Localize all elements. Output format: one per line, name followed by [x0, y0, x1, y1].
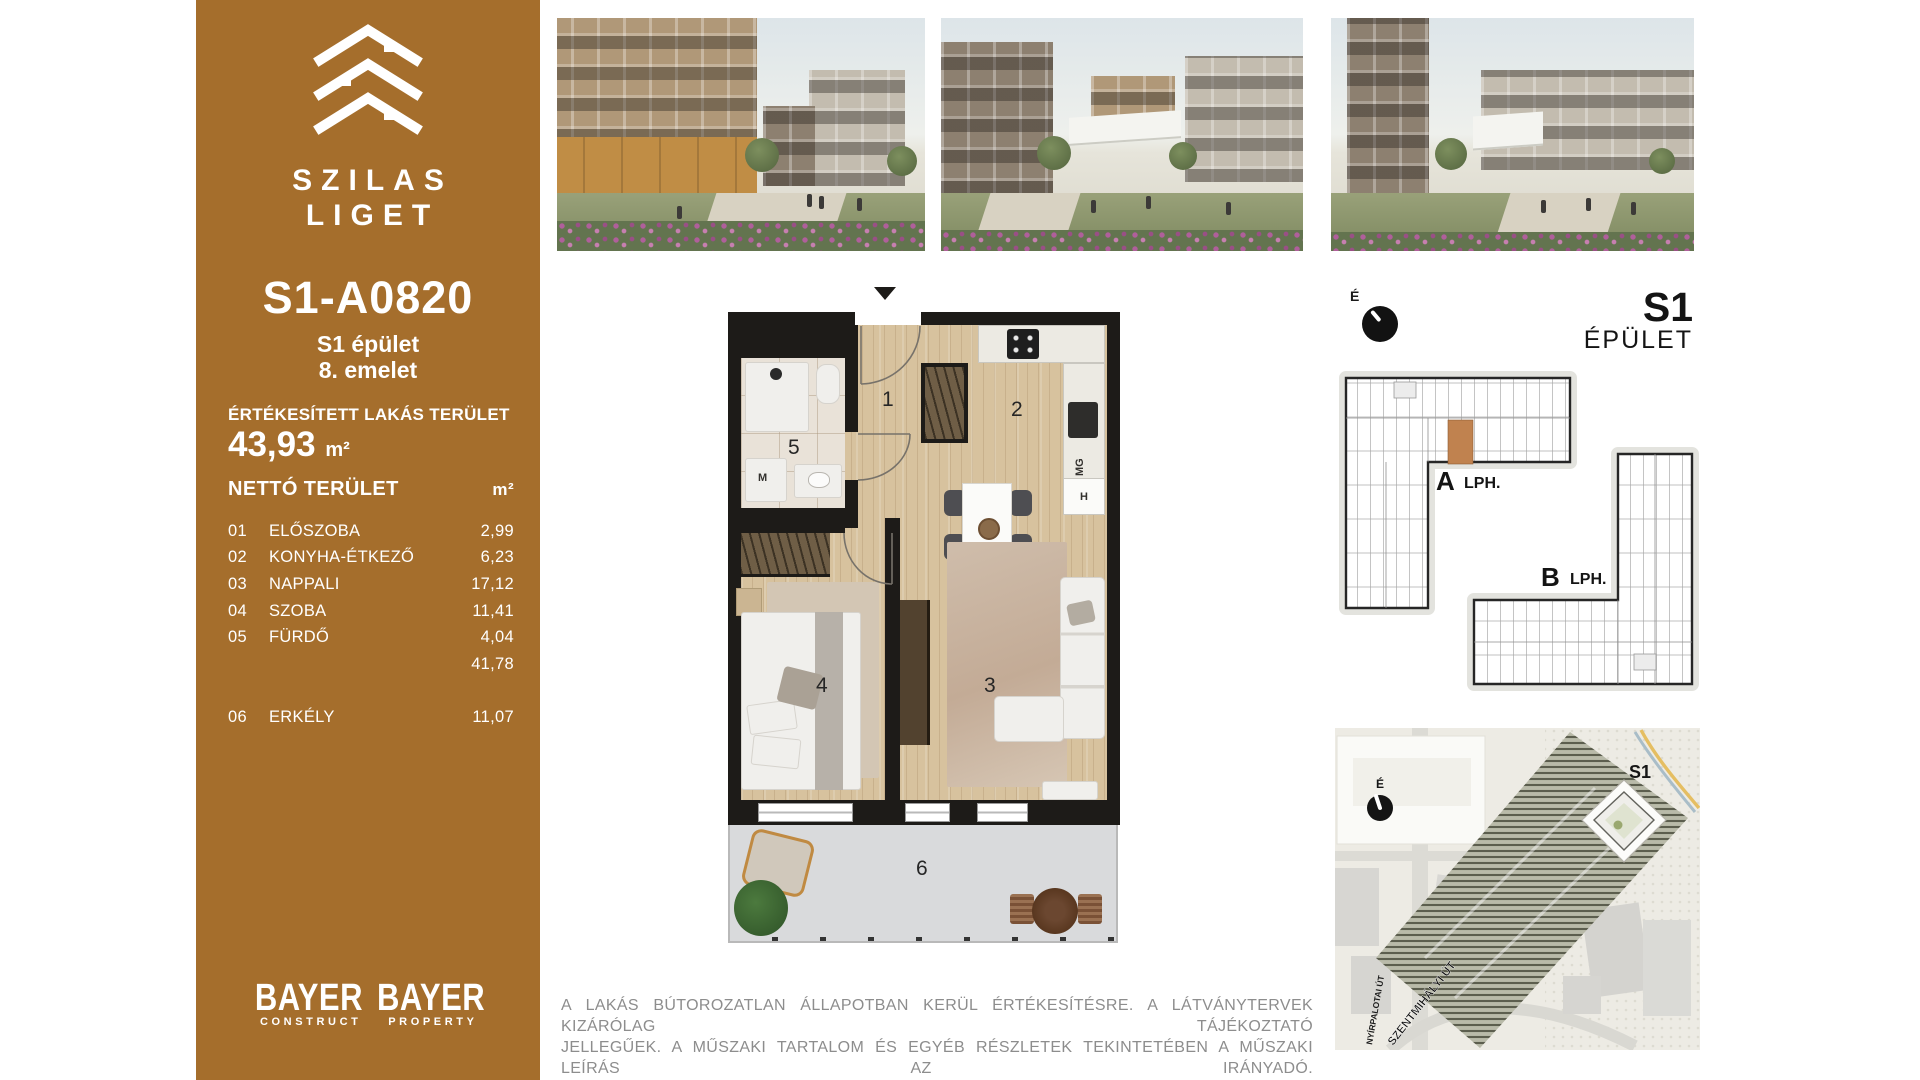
- dishwasher-label: MG: [1074, 444, 1094, 476]
- washer-label: M: [758, 472, 767, 484]
- row-area: 4,04: [481, 628, 514, 647]
- room-label-bath: 5: [788, 436, 800, 460]
- table-row-total: 41,78: [228, 651, 514, 678]
- room-label-kitchen: 2: [1011, 398, 1023, 422]
- table-row: 04 SZOBA 11,41: [228, 598, 514, 625]
- row-area: 41,78: [471, 655, 514, 674]
- logo-brand: BAYER: [377, 980, 485, 1017]
- table-row: 01 ELŐSZOBA 2,99: [228, 518, 514, 545]
- table-row: 06 ERKÉLY 11,07: [228, 705, 514, 732]
- table-plant: [978, 518, 1000, 540]
- render-photo-tower: [1331, 18, 1694, 251]
- row-no: 05: [228, 628, 269, 647]
- building-code: S1: [1450, 288, 1693, 326]
- render-photo-courtyard: [557, 18, 925, 251]
- net-area-header: NETTÓ TERÜLET m²: [228, 478, 514, 501]
- living-rug: [947, 542, 1067, 787]
- logo-brand: BAYER: [255, 980, 363, 1017]
- building-title-block: S1 ÉPÜLET: [1450, 288, 1693, 355]
- row-name: ERKÉLY: [269, 708, 472, 727]
- staircase-a-letter: A: [1436, 466, 1455, 496]
- row-no: 06: [228, 708, 269, 727]
- table-row: 05 FÜRDŐ 4,04: [228, 624, 514, 651]
- kitchen-sink: [1068, 402, 1098, 438]
- fridge-label: H: [1080, 491, 1088, 503]
- row-area: 11,41: [472, 602, 514, 621]
- row-area: 2,99: [481, 522, 514, 541]
- site-building-label: S1: [1629, 762, 1651, 782]
- bedroom-living-wall: [885, 518, 900, 800]
- sold-area-value: 43,93 m²: [228, 425, 514, 465]
- hall-bedroom-wall: [728, 518, 845, 533]
- balcony-chair: [1078, 894, 1102, 924]
- entrance-marker-icon: [874, 287, 896, 300]
- cooktop: [1007, 329, 1039, 359]
- entry-opening: [855, 312, 921, 325]
- room-label-balcony: 6: [916, 857, 928, 881]
- brand-line1: SZILAS: [196, 163, 540, 198]
- sink-basin: [808, 472, 830, 488]
- disclaimer-line1: A LAKÁS BÚTOROZATLAN ÁLLAPOTBAN KERÜL ÉR…: [561, 995, 1313, 1037]
- living-window: [977, 803, 1028, 822]
- row-area: 11,07: [472, 708, 514, 727]
- net-area-table: 01 ELŐSZOBA 2,99 02 KONYHA-ÉTKEZŐ 6,23 0…: [228, 518, 514, 731]
- apartment-floor-plan: M MG H: [722, 282, 1122, 962]
- toilet: [816, 364, 840, 404]
- balcony-table: [1032, 888, 1078, 934]
- row-no: 01: [228, 522, 269, 541]
- row-area: 6,23: [481, 548, 514, 567]
- balcony-railing: [730, 937, 1116, 941]
- room-label-hall: 1: [882, 388, 894, 412]
- row-no: 02: [228, 548, 269, 567]
- balcony-chair: [1010, 894, 1034, 924]
- table-row: 02 KONYHA-ÉTKEZŐ 6,23: [228, 545, 514, 572]
- row-no: 03: [228, 575, 269, 594]
- floor-line: 8. emelet: [196, 357, 540, 384]
- site-north-label: É: [1376, 776, 1384, 791]
- sold-area-label: ÉRTÉKESÍTETT LAKÁS TERÜLET: [228, 405, 514, 425]
- fridge: H: [1063, 478, 1105, 515]
- staircase-b-letter: B: [1541, 562, 1560, 592]
- sofa-chaise: [994, 696, 1064, 742]
- row-name: NAPPALI: [269, 575, 471, 594]
- balcony-door: [905, 803, 950, 822]
- row-name: FÜRDŐ: [269, 628, 481, 647]
- sidebar: SZILAS LIGET S1-A0820 S1 épület 8. emele…: [196, 0, 540, 1080]
- staircase-b-suffix: LPH.: [1570, 571, 1606, 588]
- kitchen-counter-top: [978, 325, 1105, 363]
- net-area-title: NETTÓ TERÜLET: [228, 478, 399, 501]
- entry-wardrobe: [925, 367, 964, 439]
- building-line: S1 épület: [196, 331, 540, 358]
- net-area-unit: m²: [492, 480, 514, 500]
- disclaimer-text: A LAKÁS BÚTOROZATLAN ÁLLAPOTBAN KERÜL ÉR…: [561, 995, 1313, 1079]
- szilas-liget-logo-icon: [196, 22, 540, 153]
- shaft-wall: [741, 325, 858, 361]
- brand-line2: LIGET: [196, 198, 540, 233]
- table-row: 03 NAPPALI 17,12: [228, 571, 514, 598]
- disclaimer-line2: JELLEGŰEK. A MŰSZAKI TARTALOM ÉS EGYÉB R…: [561, 1037, 1313, 1079]
- sold-area-unit: m²: [325, 439, 349, 461]
- row-area: 17,12: [471, 575, 514, 594]
- sold-area-number: 43,93: [228, 425, 316, 464]
- window-bench: [1042, 781, 1098, 800]
- row-name: SZOBA: [269, 602, 472, 621]
- bathroom-wall: [845, 325, 858, 432]
- row-name: ELŐSZOBA: [269, 522, 481, 541]
- shower-head-icon: [770, 368, 782, 380]
- room-label-living: 3: [984, 674, 996, 698]
- bathroom-wall: [845, 480, 858, 508]
- bayer-construct-logo: BAYER CONSTRUCT: [255, 983, 363, 1028]
- dining-chair: [1010, 490, 1032, 516]
- highlighted-unit: [1448, 420, 1473, 464]
- pillow: [751, 735, 802, 770]
- row-no: 04: [228, 602, 269, 621]
- render-photo-plaza: [941, 18, 1303, 251]
- north-label: É: [1350, 288, 1359, 304]
- room-label-bedroom: 4: [816, 674, 828, 698]
- bedroom-window: [758, 803, 853, 822]
- row-name: KONYHA-ÉTKEZŐ: [269, 548, 481, 567]
- developer-logos: BAYER CONSTRUCT BAYER PROPERTY: [218, 983, 522, 1028]
- bedroom-wardrobe: [741, 533, 830, 577]
- brochure-page: SZILAS LIGET S1-A0820 S1 épület 8. emele…: [0, 0, 1920, 1080]
- tv-cabinet: [900, 600, 930, 745]
- compass-icon: [1362, 306, 1398, 342]
- compass-needle-icon: [1370, 310, 1381, 323]
- bed-runner: [815, 612, 843, 790]
- bayer-property-logo: BAYER PROPERTY: [377, 983, 485, 1028]
- building-key-plan: A LPH. B LPH.: [1338, 366, 1710, 698]
- staircase-a-suffix: LPH.: [1464, 475, 1500, 492]
- building-word: ÉPÜLET: [1450, 326, 1693, 355]
- balcony-plant: [734, 880, 788, 936]
- site-map: S1 É NYÍRPALOTAI ÚT SZENTMIHÁLYI ÚT: [1335, 728, 1700, 1050]
- unit-code: S1-A0820: [196, 272, 540, 324]
- brand-wordmark: SZILAS LIGET: [196, 163, 540, 233]
